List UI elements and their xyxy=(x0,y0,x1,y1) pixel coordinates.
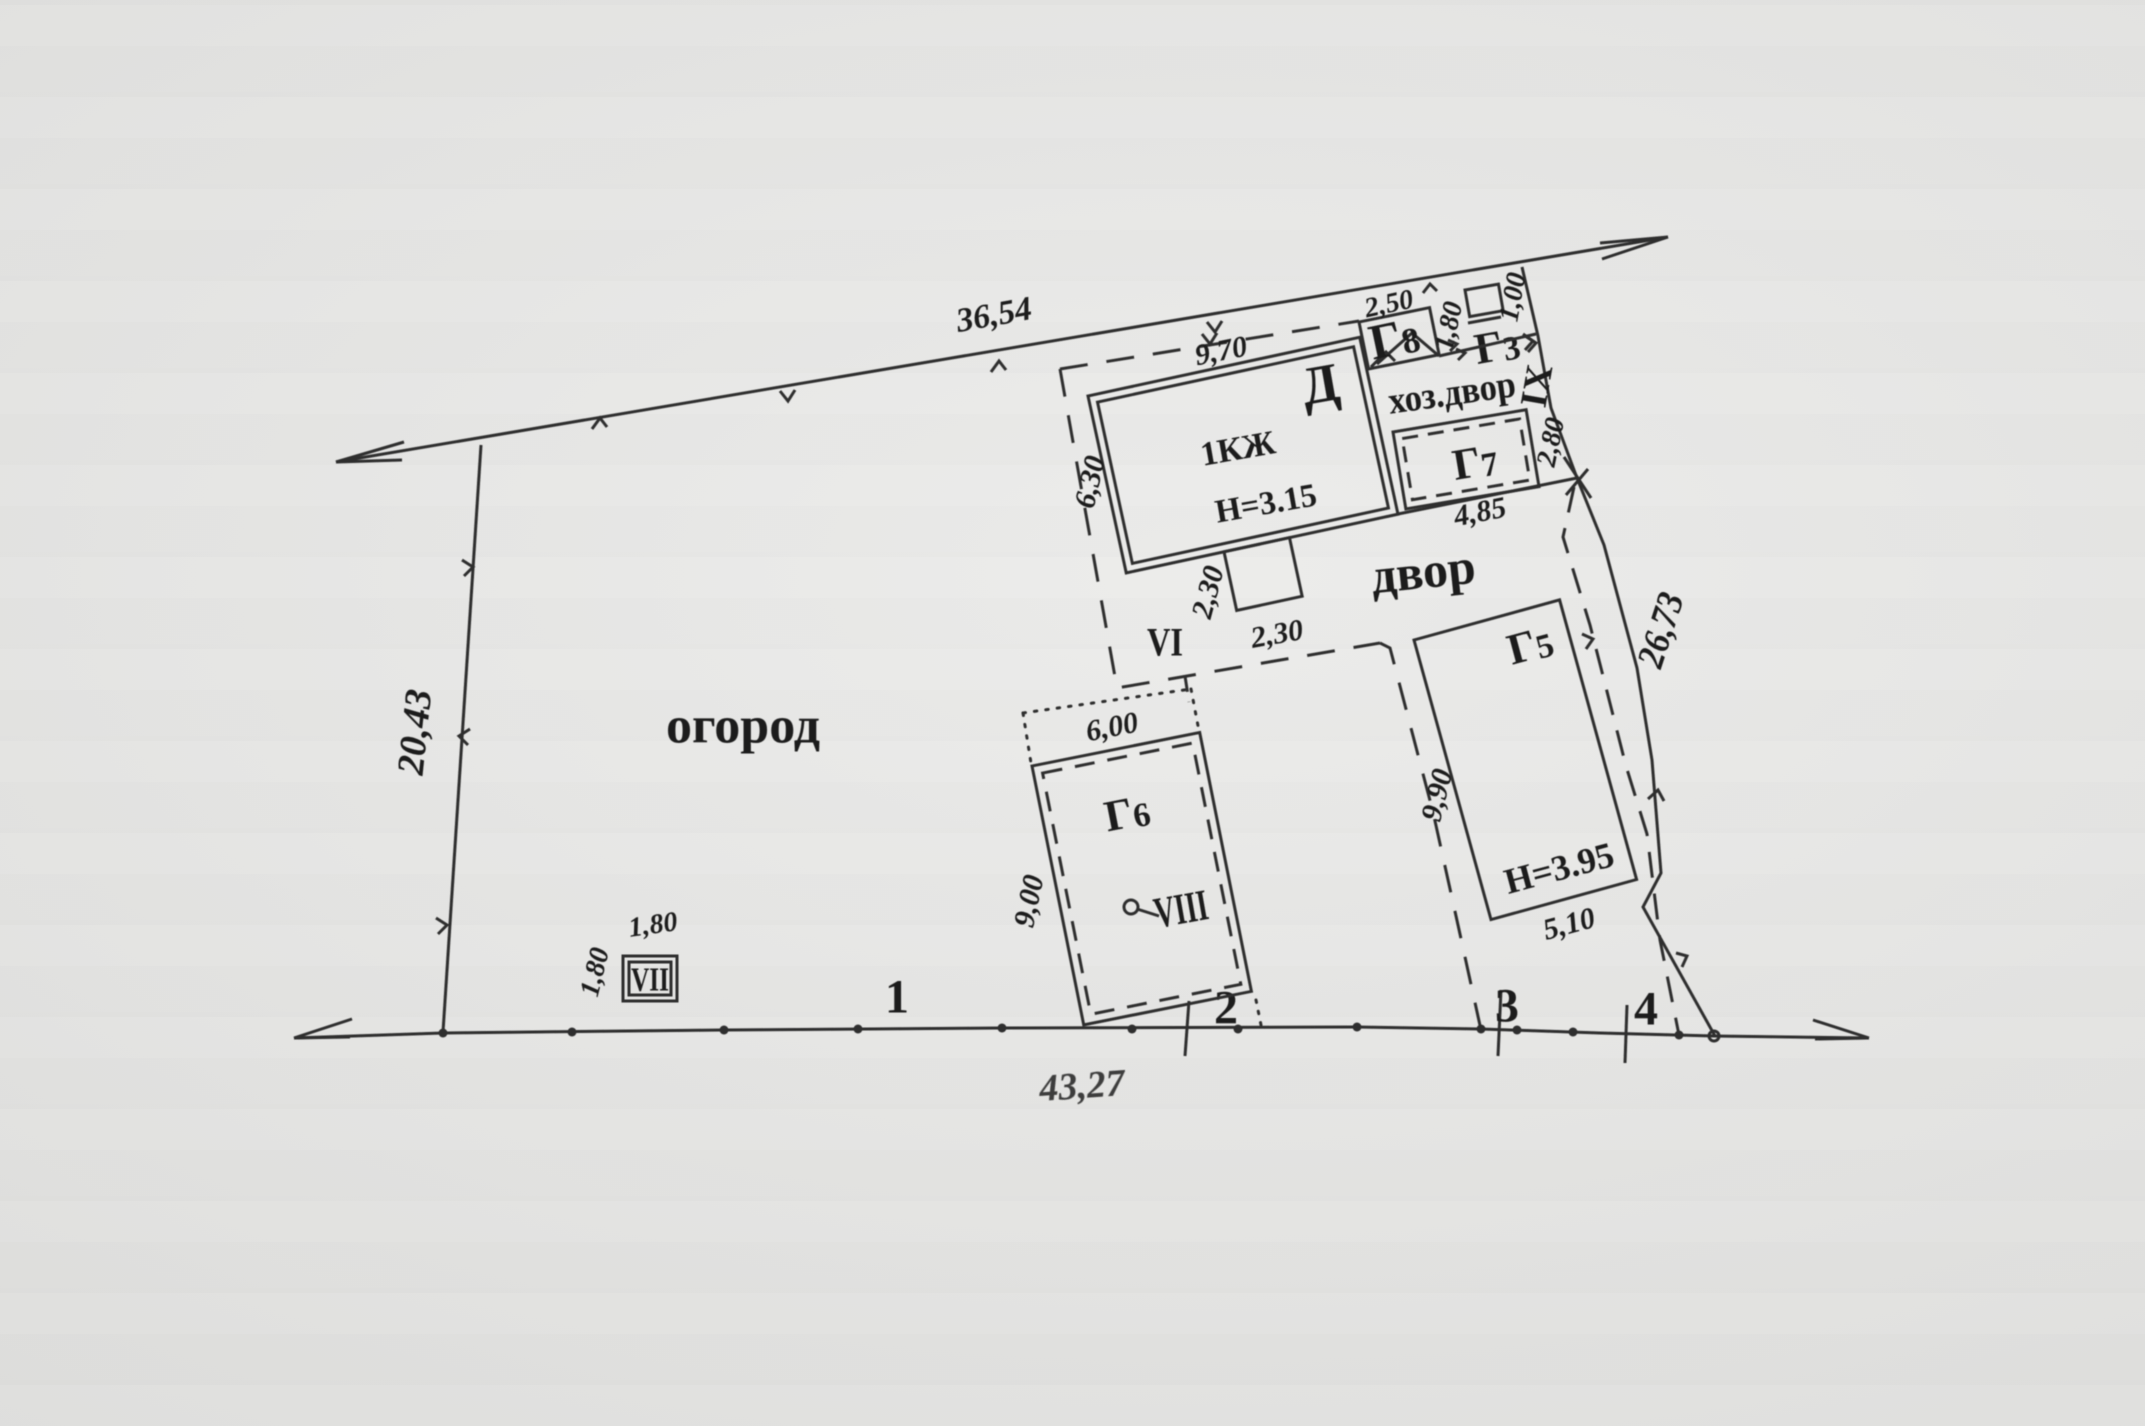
svg-text:20,43: 20,43 xyxy=(390,687,441,777)
svg-text:4: 4 xyxy=(1634,983,1658,1036)
svg-text:Г7: Г7 xyxy=(1449,434,1501,490)
svg-text:Н=3.15: Н=3.15 xyxy=(1213,477,1320,530)
svg-text:Д: Д xyxy=(1296,351,1343,417)
svg-text:двор: двор xyxy=(1368,538,1478,605)
svg-text:3: 3 xyxy=(1495,980,1519,1033)
svg-text:1,00: 1,00 xyxy=(1493,270,1532,324)
svg-text:26,73: 26,73 xyxy=(1629,587,1693,673)
svg-text:1КЖ: 1КЖ xyxy=(1198,424,1279,474)
svg-text:1,80: 1,80 xyxy=(1429,299,1470,353)
svg-text:VIII: VIII xyxy=(1150,880,1212,938)
svg-text:Г5: Г5 xyxy=(1502,616,1558,675)
svg-text:1,80: 1,80 xyxy=(574,944,616,999)
svg-text:2: 2 xyxy=(1214,982,1238,1035)
svg-text:VII: VII xyxy=(631,962,669,999)
svg-text:огород: огород xyxy=(666,698,820,755)
svg-text:VI: VI xyxy=(1147,620,1183,665)
svg-text:36,54: 36,54 xyxy=(952,290,1034,340)
svg-text:43,27: 43,27 xyxy=(1037,1062,1128,1110)
svg-text:9,00: 9,00 xyxy=(1007,872,1050,930)
svg-text:5,10: 5,10 xyxy=(1539,901,1598,946)
svg-text:2,50: 2,50 xyxy=(1361,284,1416,325)
svg-text:6,00: 6,00 xyxy=(1083,706,1141,748)
svg-text:2,30: 2,30 xyxy=(1185,562,1231,622)
svg-text:Н=3.95: Н=3.95 xyxy=(1500,834,1618,901)
svg-text:IX: IX xyxy=(1513,362,1562,411)
svg-text:9,90: 9,90 xyxy=(1415,766,1460,825)
svg-text:2,80: 2,80 xyxy=(1531,415,1572,470)
svg-text:Г6: Г6 xyxy=(1100,785,1154,842)
svg-text:2,30: 2,30 xyxy=(1247,613,1305,655)
svg-text:1,80: 1,80 xyxy=(627,906,680,944)
svg-text:6,30: 6,30 xyxy=(1068,453,1112,512)
svg-text:4,85: 4,85 xyxy=(1450,491,1509,534)
svg-text:1: 1 xyxy=(885,971,909,1024)
